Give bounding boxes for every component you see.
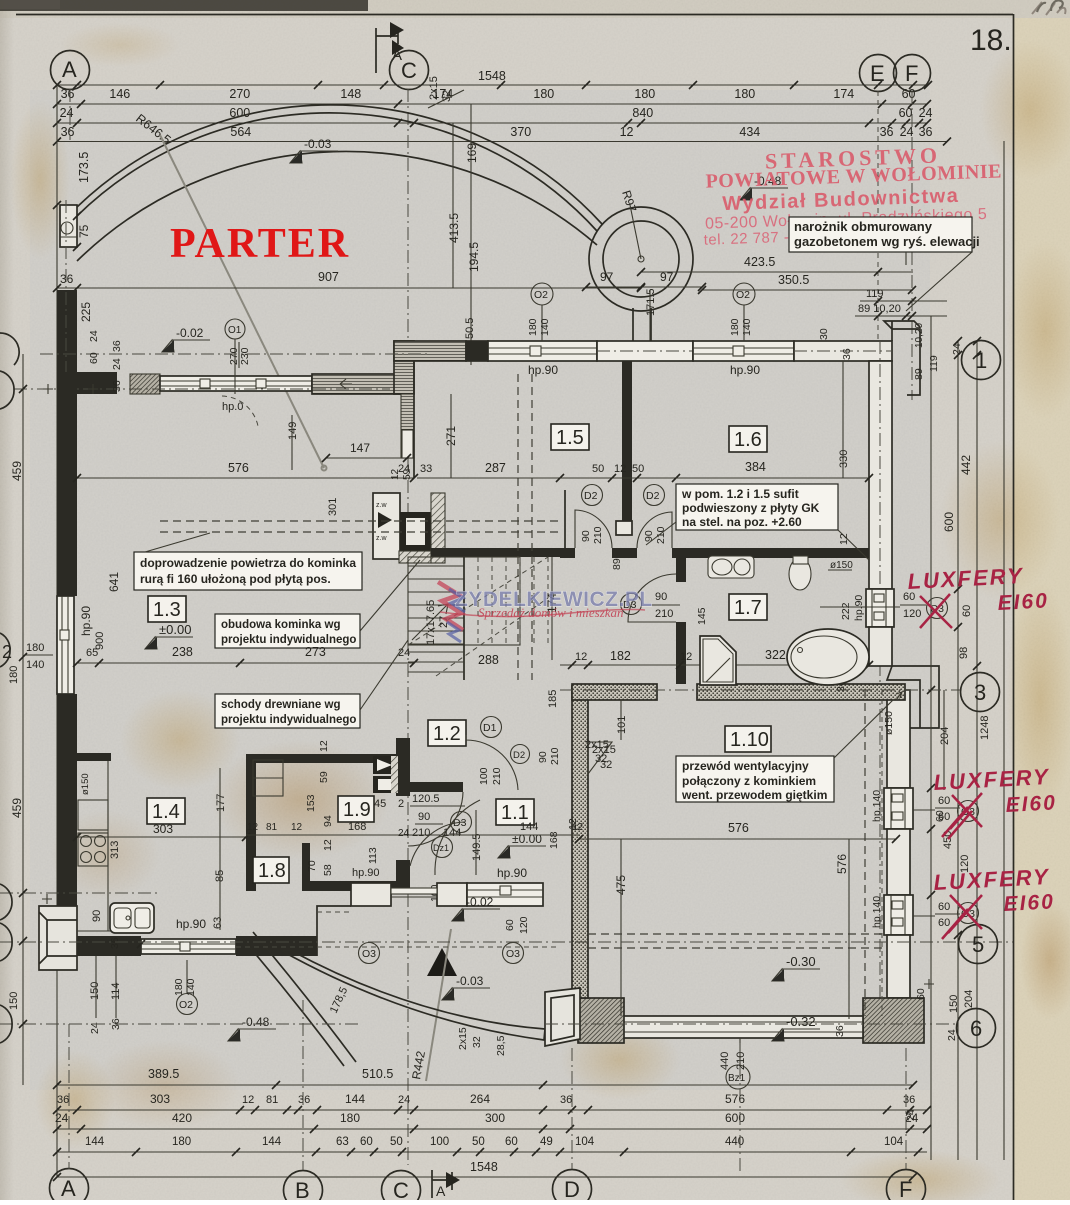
svg-text:24: 24 bbox=[55, 1111, 69, 1125]
svg-text:24: 24 bbox=[951, 343, 963, 355]
svg-text:1.6: 1.6 bbox=[734, 429, 762, 451]
svg-text:rurą fi 160 ułożoną pod płytą: rurą fi 160 ułożoną pod płytą pos. bbox=[140, 572, 331, 586]
svg-text:238: 238 bbox=[172, 645, 193, 659]
svg-text:36: 36 bbox=[111, 340, 123, 352]
svg-text:2x15: 2x15 bbox=[585, 739, 609, 751]
svg-text:5: 5 bbox=[972, 932, 984, 957]
svg-text:173.5: 173.5 bbox=[77, 152, 91, 183]
svg-text:144: 144 bbox=[345, 1092, 365, 1106]
svg-text:94: 94 bbox=[322, 815, 334, 827]
svg-text:101: 101 bbox=[616, 716, 628, 734]
svg-text:210: 210 bbox=[491, 767, 503, 785]
svg-text:210: 210 bbox=[735, 1052, 747, 1070]
svg-text:150: 150 bbox=[948, 995, 960, 1013]
svg-text:50: 50 bbox=[592, 463, 604, 475]
svg-text:60: 60 bbox=[504, 919, 516, 931]
svg-text:146: 146 bbox=[109, 87, 130, 101]
svg-text:36: 36 bbox=[880, 125, 894, 139]
svg-text:270: 270 bbox=[229, 87, 250, 101]
svg-text:60: 60 bbox=[360, 1136, 373, 1148]
svg-text:440: 440 bbox=[725, 1136, 744, 1148]
svg-text:60: 60 bbox=[938, 901, 950, 913]
svg-text:24: 24 bbox=[398, 1094, 410, 1106]
svg-text:119: 119 bbox=[928, 355, 940, 372]
svg-text:hp.90: hp.90 bbox=[79, 606, 93, 636]
svg-text:z.w: z.w bbox=[376, 502, 387, 509]
svg-text:600: 600 bbox=[942, 512, 956, 532]
svg-text:300: 300 bbox=[485, 1111, 505, 1125]
svg-text:510.5: 510.5 bbox=[362, 1067, 393, 1081]
svg-text:podwieszony z płyty GK: podwieszony z płyty GK bbox=[682, 501, 820, 515]
svg-text:50: 50 bbox=[632, 463, 644, 475]
svg-text:60: 60 bbox=[899, 106, 913, 120]
svg-text:6: 6 bbox=[970, 1016, 982, 1041]
svg-text:hp.90: hp.90 bbox=[730, 363, 760, 377]
svg-text:180: 180 bbox=[8, 666, 20, 684]
svg-text:przewód wentylacyjny: przewód wentylacyjny bbox=[682, 759, 809, 773]
svg-text:28,5: 28,5 bbox=[495, 1035, 507, 1056]
svg-text:12: 12 bbox=[620, 125, 634, 139]
svg-text:O2: O2 bbox=[534, 289, 548, 301]
svg-text:24: 24 bbox=[905, 1109, 917, 1121]
svg-text:obudowa kominka wg: obudowa kominka wg bbox=[221, 619, 340, 631]
svg-text:180: 180 bbox=[340, 1111, 360, 1125]
svg-text:576: 576 bbox=[725, 1092, 745, 1106]
svg-text:24: 24 bbox=[60, 106, 74, 120]
svg-text:hp.140: hp.140 bbox=[871, 790, 883, 822]
svg-text:90: 90 bbox=[655, 591, 667, 603]
svg-text:90: 90 bbox=[418, 811, 430, 823]
svg-text:90: 90 bbox=[537, 751, 549, 763]
svg-text:24: 24 bbox=[398, 828, 410, 839]
svg-text:90: 90 bbox=[643, 530, 655, 542]
svg-text:180: 180 bbox=[527, 318, 539, 336]
svg-text:100: 100 bbox=[478, 767, 490, 785]
svg-text:140: 140 bbox=[26, 659, 44, 671]
svg-text:ø150: ø150 bbox=[830, 560, 853, 571]
svg-text:60: 60 bbox=[88, 352, 100, 364]
svg-text:147: 147 bbox=[350, 441, 370, 455]
svg-text:230: 230 bbox=[239, 347, 251, 365]
svg-text:89 10,20: 89 10,20 bbox=[858, 303, 901, 315]
svg-text:Dz1: Dz1 bbox=[433, 843, 449, 853]
svg-text:1548: 1548 bbox=[478, 69, 506, 83]
svg-text:104: 104 bbox=[575, 1136, 595, 1148]
svg-text:36: 36 bbox=[919, 125, 933, 139]
svg-text:12: 12 bbox=[291, 822, 303, 833]
svg-text:B: B bbox=[295, 1178, 310, 1200]
svg-text:180: 180 bbox=[734, 87, 755, 101]
svg-text:hp.90: hp.90 bbox=[176, 917, 206, 931]
svg-text:89: 89 bbox=[913, 368, 925, 380]
svg-text:370: 370 bbox=[510, 125, 531, 139]
svg-text:12: 12 bbox=[322, 839, 334, 851]
svg-text:60: 60 bbox=[961, 605, 973, 617]
svg-text:12: 12 bbox=[242, 1094, 254, 1106]
svg-text:459: 459 bbox=[10, 461, 24, 481]
svg-text:288: 288 bbox=[478, 653, 499, 667]
svg-text:36: 36 bbox=[57, 1094, 69, 1106]
svg-text:PARTER: PARTER bbox=[170, 221, 350, 267]
svg-text:projektu indywidualnego: projektu indywidualnego bbox=[221, 634, 356, 646]
svg-text:-0.03: -0.03 bbox=[456, 974, 484, 988]
svg-text:hp.90: hp.90 bbox=[853, 595, 865, 621]
svg-text:36: 36 bbox=[903, 1094, 915, 1106]
svg-text:169: 169 bbox=[465, 143, 479, 163]
svg-text:70: 70 bbox=[306, 860, 318, 872]
svg-text:2: 2 bbox=[398, 798, 404, 810]
svg-text:180: 180 bbox=[26, 642, 44, 654]
svg-text:389.5: 389.5 bbox=[148, 1067, 179, 1081]
svg-text:10,20: 10,20 bbox=[914, 323, 925, 348]
svg-text:-0.02: -0.02 bbox=[466, 895, 494, 909]
svg-text:440: 440 bbox=[719, 1052, 731, 1070]
svg-text:EI60: EI60 bbox=[997, 589, 1049, 615]
svg-text:90: 90 bbox=[91, 910, 103, 922]
svg-text:182: 182 bbox=[610, 649, 631, 663]
svg-text:180: 180 bbox=[634, 87, 655, 101]
svg-text:434: 434 bbox=[739, 125, 760, 139]
svg-text:36: 36 bbox=[834, 1025, 846, 1037]
svg-text:17x17.65: 17x17.65 bbox=[425, 600, 437, 645]
svg-text:144: 144 bbox=[443, 827, 461, 839]
svg-text:350.5: 350.5 bbox=[778, 273, 809, 287]
svg-text:12: 12 bbox=[838, 533, 850, 545]
svg-text:-0.48: -0.48 bbox=[242, 1015, 270, 1029]
svg-text:F: F bbox=[905, 61, 918, 86]
svg-text:58: 58 bbox=[322, 864, 334, 876]
svg-text:narożnik obmurowany: narożnik obmurowany bbox=[794, 219, 933, 234]
svg-text:EI60: EI60 bbox=[1003, 890, 1055, 916]
svg-text:60: 60 bbox=[938, 917, 950, 929]
svg-text:171.5: 171.5 bbox=[645, 288, 657, 316]
svg-text:273: 273 bbox=[305, 645, 326, 659]
svg-text:145: 145 bbox=[696, 607, 708, 625]
svg-text:24: 24 bbox=[88, 330, 100, 342]
svg-text:24: 24 bbox=[900, 125, 914, 139]
svg-text:połączony z kominkiem: połączony z kominkiem bbox=[682, 774, 816, 788]
svg-text:A: A bbox=[61, 1176, 76, 1200]
svg-text:Bz1: Bz1 bbox=[728, 1073, 746, 1084]
svg-text:140: 140 bbox=[539, 318, 551, 336]
svg-text:150: 150 bbox=[89, 982, 101, 1000]
svg-text:50: 50 bbox=[472, 1136, 485, 1148]
svg-text:840: 840 bbox=[632, 106, 653, 120]
svg-text:1248: 1248 bbox=[979, 716, 991, 740]
svg-text:-0.30: -0.30 bbox=[786, 954, 816, 969]
svg-text:50: 50 bbox=[390, 1136, 403, 1148]
svg-text:413.5: 413.5 bbox=[447, 213, 461, 243]
svg-text:36: 36 bbox=[60, 272, 74, 286]
svg-text:O2: O2 bbox=[736, 289, 750, 301]
svg-text:100: 100 bbox=[430, 1136, 449, 1148]
svg-text:hp.90: hp.90 bbox=[497, 866, 527, 880]
svg-text:12: 12 bbox=[318, 740, 330, 752]
svg-text:12: 12 bbox=[575, 651, 587, 663]
svg-text:A: A bbox=[62, 57, 77, 82]
svg-text:564: 564 bbox=[230, 125, 251, 139]
svg-text:75: 75 bbox=[77, 224, 91, 238]
svg-text:63: 63 bbox=[336, 1136, 349, 1148]
svg-text:180: 180 bbox=[533, 87, 554, 101]
svg-text:144: 144 bbox=[520, 821, 538, 833]
svg-text:210: 210 bbox=[412, 827, 430, 839]
svg-text:1.4: 1.4 bbox=[152, 801, 180, 823]
svg-text:24: 24 bbox=[398, 647, 410, 659]
svg-text:149: 149 bbox=[287, 422, 299, 440]
svg-text:641: 641 bbox=[107, 572, 121, 592]
svg-text:303: 303 bbox=[153, 822, 173, 836]
svg-text:18.: 18. bbox=[970, 24, 1012, 57]
svg-text:1.10: 1.10 bbox=[730, 729, 769, 751]
svg-text:32: 32 bbox=[595, 753, 607, 765]
svg-text:185: 185 bbox=[547, 690, 559, 708]
svg-text:24: 24 bbox=[111, 358, 123, 370]
svg-text:doprowadzenie powietrza do kom: doprowadzenie powietrza do kominka bbox=[140, 556, 356, 570]
svg-text:z.w: z.w bbox=[376, 535, 387, 542]
svg-text:459: 459 bbox=[10, 798, 24, 818]
svg-text:576: 576 bbox=[835, 854, 849, 874]
svg-text:ø150: ø150 bbox=[80, 773, 91, 795]
svg-text:33: 33 bbox=[420, 463, 432, 475]
svg-text:36: 36 bbox=[109, 937, 121, 949]
svg-text:36: 36 bbox=[841, 348, 853, 360]
svg-text:12: 12 bbox=[572, 822, 584, 833]
svg-text:±0.00: ±0.00 bbox=[159, 622, 191, 637]
svg-text:2: 2 bbox=[2, 642, 12, 662]
svg-text:144: 144 bbox=[85, 1136, 105, 1148]
svg-text:32: 32 bbox=[471, 1036, 483, 1048]
svg-text:180: 180 bbox=[729, 318, 741, 336]
svg-text:1.5: 1.5 bbox=[556, 427, 584, 449]
svg-text:EI60: EI60 bbox=[1005, 791, 1057, 817]
svg-text:36: 36 bbox=[560, 1094, 572, 1106]
svg-text:104: 104 bbox=[884, 1136, 904, 1148]
svg-text:313: 313 bbox=[109, 841, 121, 859]
svg-text:12: 12 bbox=[614, 463, 626, 475]
svg-text:D2: D2 bbox=[584, 490, 598, 502]
svg-text:210: 210 bbox=[655, 608, 673, 620]
svg-text:49: 49 bbox=[540, 1136, 553, 1148]
svg-text:210: 210 bbox=[592, 526, 604, 544]
svg-text:±0.00: ±0.00 bbox=[512, 832, 542, 846]
svg-text:177: 177 bbox=[215, 794, 227, 812]
svg-text:225: 225 bbox=[79, 302, 93, 322]
svg-text:442: 442 bbox=[959, 455, 973, 475]
svg-text:210: 210 bbox=[549, 747, 561, 765]
svg-text:97: 97 bbox=[600, 270, 614, 284]
svg-text:30: 30 bbox=[818, 328, 830, 340]
svg-text:60: 60 bbox=[915, 988, 927, 1000]
svg-text:65: 65 bbox=[86, 647, 98, 659]
svg-text:12: 12 bbox=[680, 651, 692, 663]
svg-text:180: 180 bbox=[173, 978, 185, 996]
svg-text:went. przewodem giętkim: went. przewodem giętkim bbox=[681, 788, 827, 802]
svg-text:113: 113 bbox=[367, 847, 379, 864]
svg-text:hp.140: hp.140 bbox=[871, 896, 883, 928]
svg-text:gazobetonem wg ryś. elewacji: gazobetonem wg ryś. elewacji bbox=[794, 234, 980, 249]
svg-text:264: 264 bbox=[470, 1092, 490, 1106]
svg-text:81: 81 bbox=[266, 822, 278, 833]
svg-text:204: 204 bbox=[939, 727, 951, 745]
svg-text:174: 174 bbox=[833, 87, 854, 101]
svg-text:24: 24 bbox=[919, 106, 933, 120]
svg-text:204: 204 bbox=[963, 990, 975, 1008]
svg-text:ø150: ø150 bbox=[883, 711, 895, 735]
svg-text:2x15: 2x15 bbox=[457, 1027, 469, 1050]
svg-text:98: 98 bbox=[958, 647, 970, 659]
svg-text:420: 420 bbox=[172, 1111, 192, 1125]
svg-text:168: 168 bbox=[548, 831, 560, 849]
svg-text:149.5: 149.5 bbox=[471, 833, 483, 861]
svg-text:C: C bbox=[401, 58, 417, 83]
svg-text:63: 63 bbox=[212, 917, 224, 929]
svg-text:D: D bbox=[564, 1177, 580, 1200]
svg-text:12: 12 bbox=[247, 822, 259, 833]
svg-text:60: 60 bbox=[505, 1136, 518, 1148]
svg-text:D2: D2 bbox=[646, 490, 660, 502]
svg-text:322: 322 bbox=[765, 648, 786, 662]
svg-text:O3: O3 bbox=[506, 948, 520, 960]
svg-text:na stel. na poz. +2.60: na stel. na poz. +2.60 bbox=[682, 515, 802, 529]
svg-text:1.8: 1.8 bbox=[258, 860, 286, 882]
svg-text:1.9: 1.9 bbox=[343, 799, 371, 821]
svg-text:1.7: 1.7 bbox=[734, 597, 762, 619]
svg-text:140: 140 bbox=[185, 978, 197, 996]
svg-text:210: 210 bbox=[655, 526, 667, 544]
svg-text:60: 60 bbox=[938, 795, 950, 807]
svg-text:schody drewniane wg: schody drewniane wg bbox=[221, 699, 341, 711]
svg-text:hp.90: hp.90 bbox=[352, 867, 380, 879]
svg-text:150: 150 bbox=[8, 992, 20, 1010]
svg-text:36: 36 bbox=[298, 1094, 310, 1106]
svg-text:180: 180 bbox=[172, 1136, 191, 1148]
svg-text:60: 60 bbox=[934, 810, 946, 822]
svg-text:59: 59 bbox=[318, 771, 330, 783]
svg-text:50.5: 50.5 bbox=[464, 318, 476, 339]
svg-text:140: 140 bbox=[741, 318, 753, 336]
svg-text:120.5: 120.5 bbox=[412, 793, 440, 805]
svg-text:projektu indywidualnego: projektu indywidualnego bbox=[221, 714, 356, 726]
svg-text:3: 3 bbox=[974, 680, 986, 705]
svg-text:O2: O2 bbox=[179, 999, 193, 1011]
svg-text:576: 576 bbox=[228, 461, 249, 475]
svg-text:C: C bbox=[393, 1178, 409, 1200]
svg-text:-0.03: -0.03 bbox=[304, 137, 332, 151]
svg-text:hp.0: hp.0 bbox=[222, 401, 243, 413]
svg-text:-0.32: -0.32 bbox=[786, 1014, 816, 1029]
svg-text:Sprzedaż domów i mieszkań: Sprzedaż domów i mieszkań bbox=[478, 605, 624, 620]
svg-text:423.5: 423.5 bbox=[744, 255, 775, 269]
svg-text:2x15: 2x15 bbox=[428, 76, 440, 100]
svg-text:1.2: 1.2 bbox=[433, 723, 461, 745]
svg-text:576: 576 bbox=[728, 821, 749, 835]
svg-text:120: 120 bbox=[903, 608, 921, 620]
svg-text:144: 144 bbox=[262, 1136, 282, 1148]
svg-text:O1: O1 bbox=[228, 325, 242, 336]
svg-text:81: 81 bbox=[266, 1094, 278, 1106]
svg-text:120: 120 bbox=[518, 916, 530, 934]
svg-text:36: 36 bbox=[111, 380, 123, 392]
svg-text:148: 148 bbox=[340, 87, 361, 101]
svg-text:301: 301 bbox=[327, 498, 339, 516]
svg-text:168: 168 bbox=[348, 821, 366, 833]
svg-text:E: E bbox=[870, 61, 885, 86]
svg-text:45: 45 bbox=[374, 798, 386, 810]
svg-text:907: 907 bbox=[318, 270, 339, 284]
svg-text:w pom. 1.2 i 1.5 sufit: w pom. 1.2 i 1.5 sufit bbox=[681, 487, 799, 501]
svg-text:303: 303 bbox=[150, 1092, 170, 1106]
svg-text:222: 222 bbox=[840, 602, 852, 620]
svg-text:194.5: 194.5 bbox=[467, 242, 481, 272]
svg-text:24: 24 bbox=[398, 463, 410, 475]
svg-text:36: 36 bbox=[61, 125, 75, 139]
svg-text:153: 153 bbox=[305, 794, 317, 812]
svg-text:600: 600 bbox=[725, 1111, 745, 1125]
svg-text:90: 90 bbox=[580, 530, 592, 542]
svg-text:287: 287 bbox=[485, 461, 506, 475]
svg-text:1.3: 1.3 bbox=[153, 599, 181, 621]
svg-text:A: A bbox=[436, 1183, 446, 1199]
svg-text:D1: D1 bbox=[483, 722, 497, 734]
svg-text:1548: 1548 bbox=[470, 1160, 498, 1174]
svg-text:89: 89 bbox=[611, 558, 623, 570]
svg-text:D2: D2 bbox=[513, 750, 525, 761]
svg-text:384: 384 bbox=[745, 460, 766, 474]
svg-text:330: 330 bbox=[838, 450, 850, 468]
svg-text:F: F bbox=[899, 1177, 912, 1200]
svg-text:-0.02: -0.02 bbox=[176, 326, 204, 340]
svg-text:O3: O3 bbox=[362, 948, 376, 960]
